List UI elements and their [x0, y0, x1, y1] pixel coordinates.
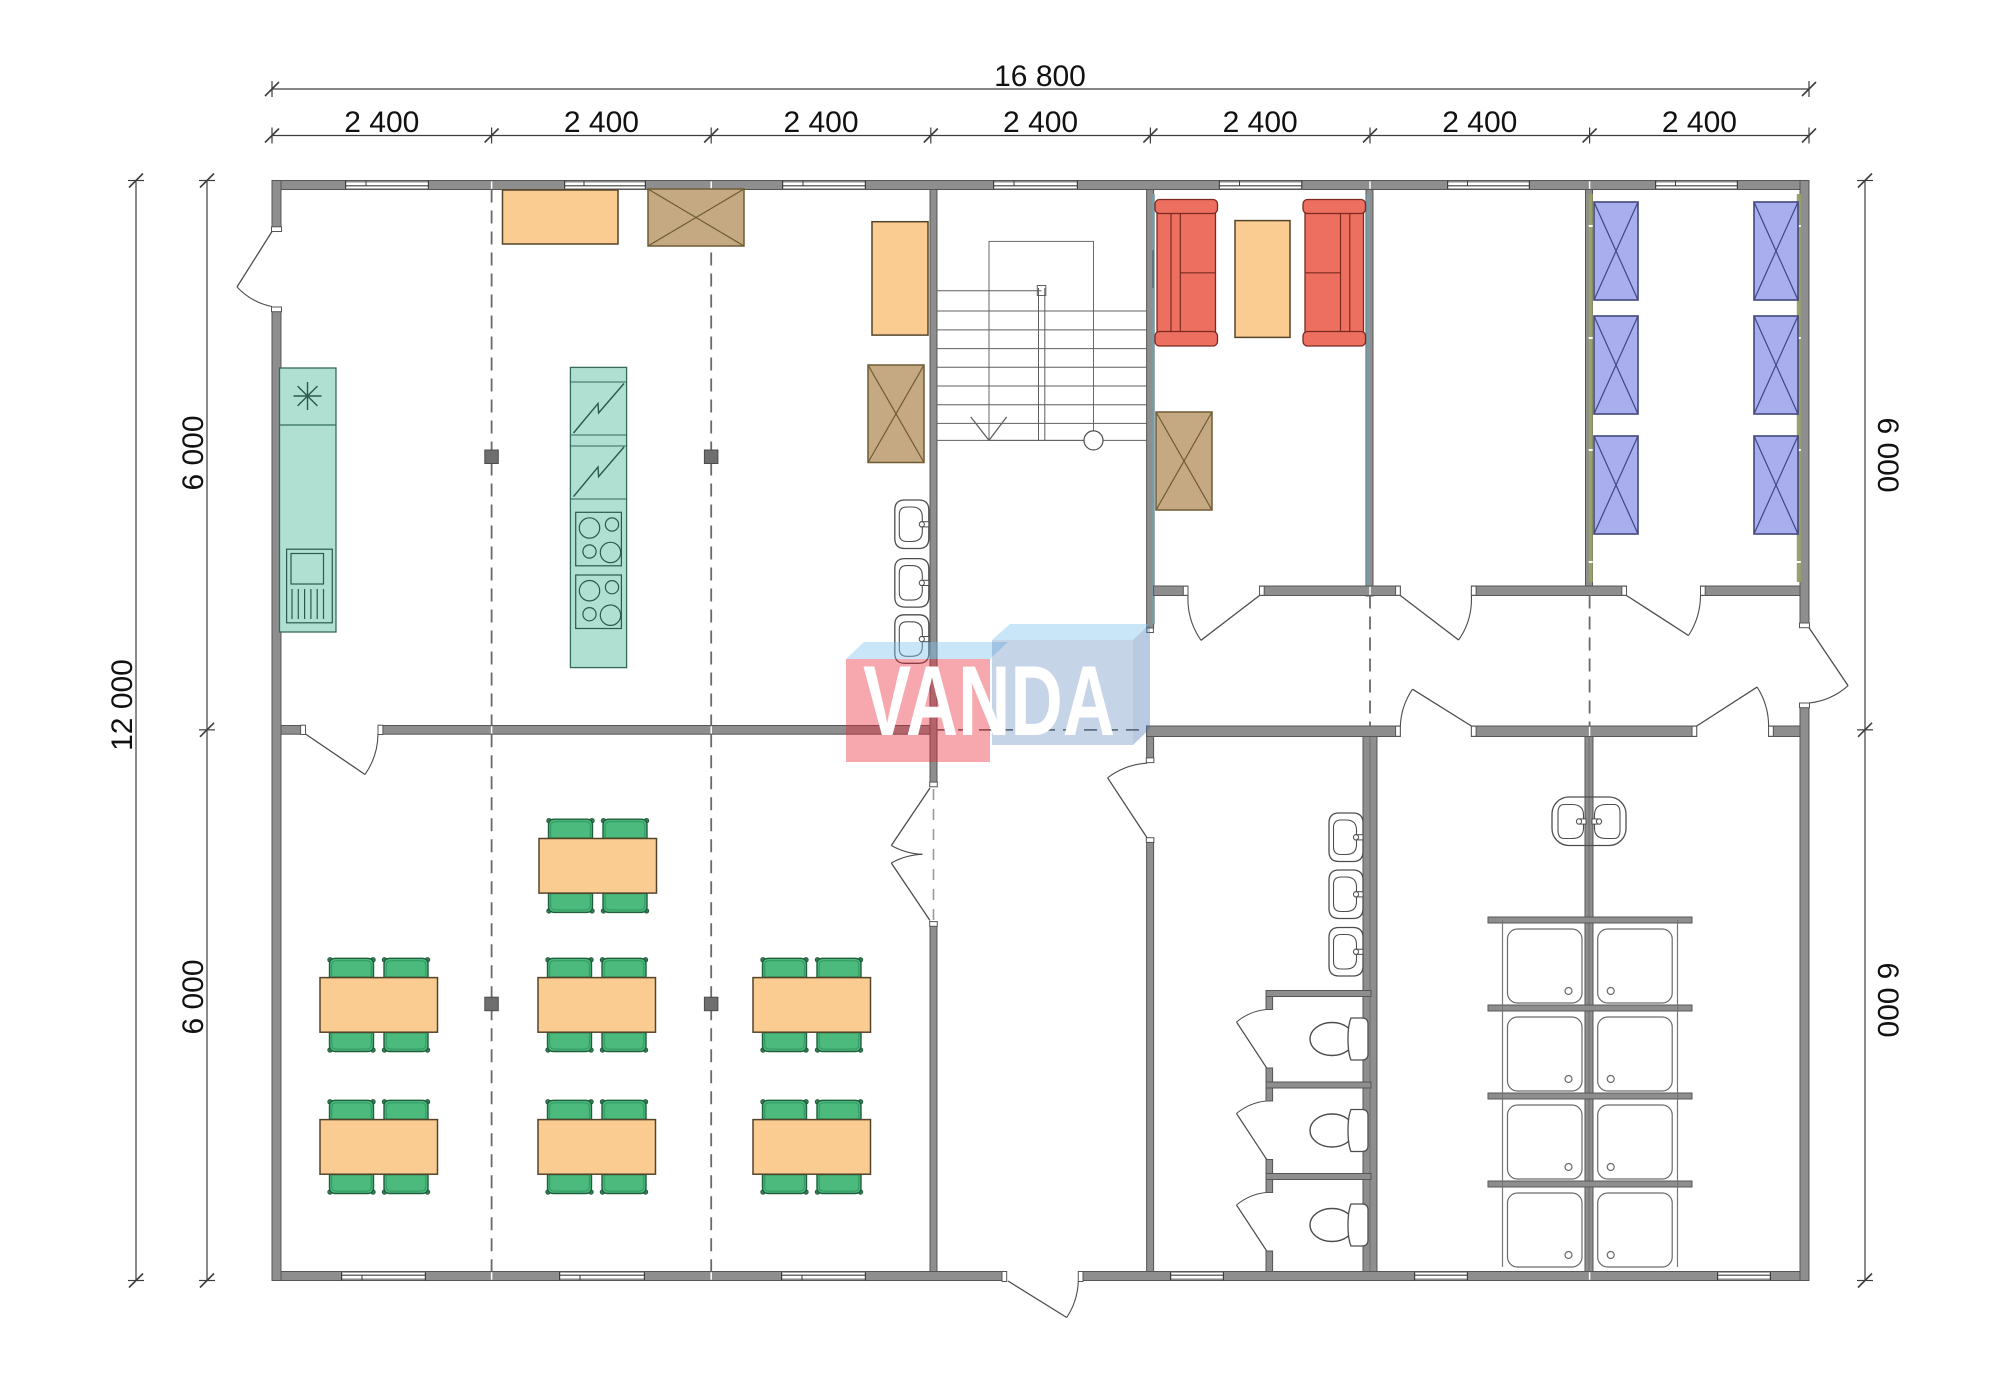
- svg-text:2 400: 2 400: [564, 106, 639, 139]
- svg-text:2 400: 2 400: [1223, 106, 1298, 139]
- svg-text:2 400: 2 400: [1662, 106, 1737, 139]
- svg-text:2 400: 2 400: [1442, 106, 1517, 139]
- svg-text:2 400: 2 400: [783, 106, 858, 139]
- svg-text:2 400: 2 400: [1003, 106, 1078, 139]
- svg-text:6 000: 6 000: [177, 415, 210, 490]
- svg-text:16 800: 16 800: [994, 60, 1086, 93]
- svg-text:2 400: 2 400: [344, 106, 419, 139]
- svg-text:12 000: 12 000: [106, 659, 139, 751]
- svg-text:6 000: 6 000: [1871, 417, 1904, 492]
- svg-text:VANDA: VANDA: [863, 645, 1115, 756]
- svg-text:6 000: 6 000: [177, 959, 210, 1034]
- svg-text:6 000: 6 000: [1871, 962, 1904, 1037]
